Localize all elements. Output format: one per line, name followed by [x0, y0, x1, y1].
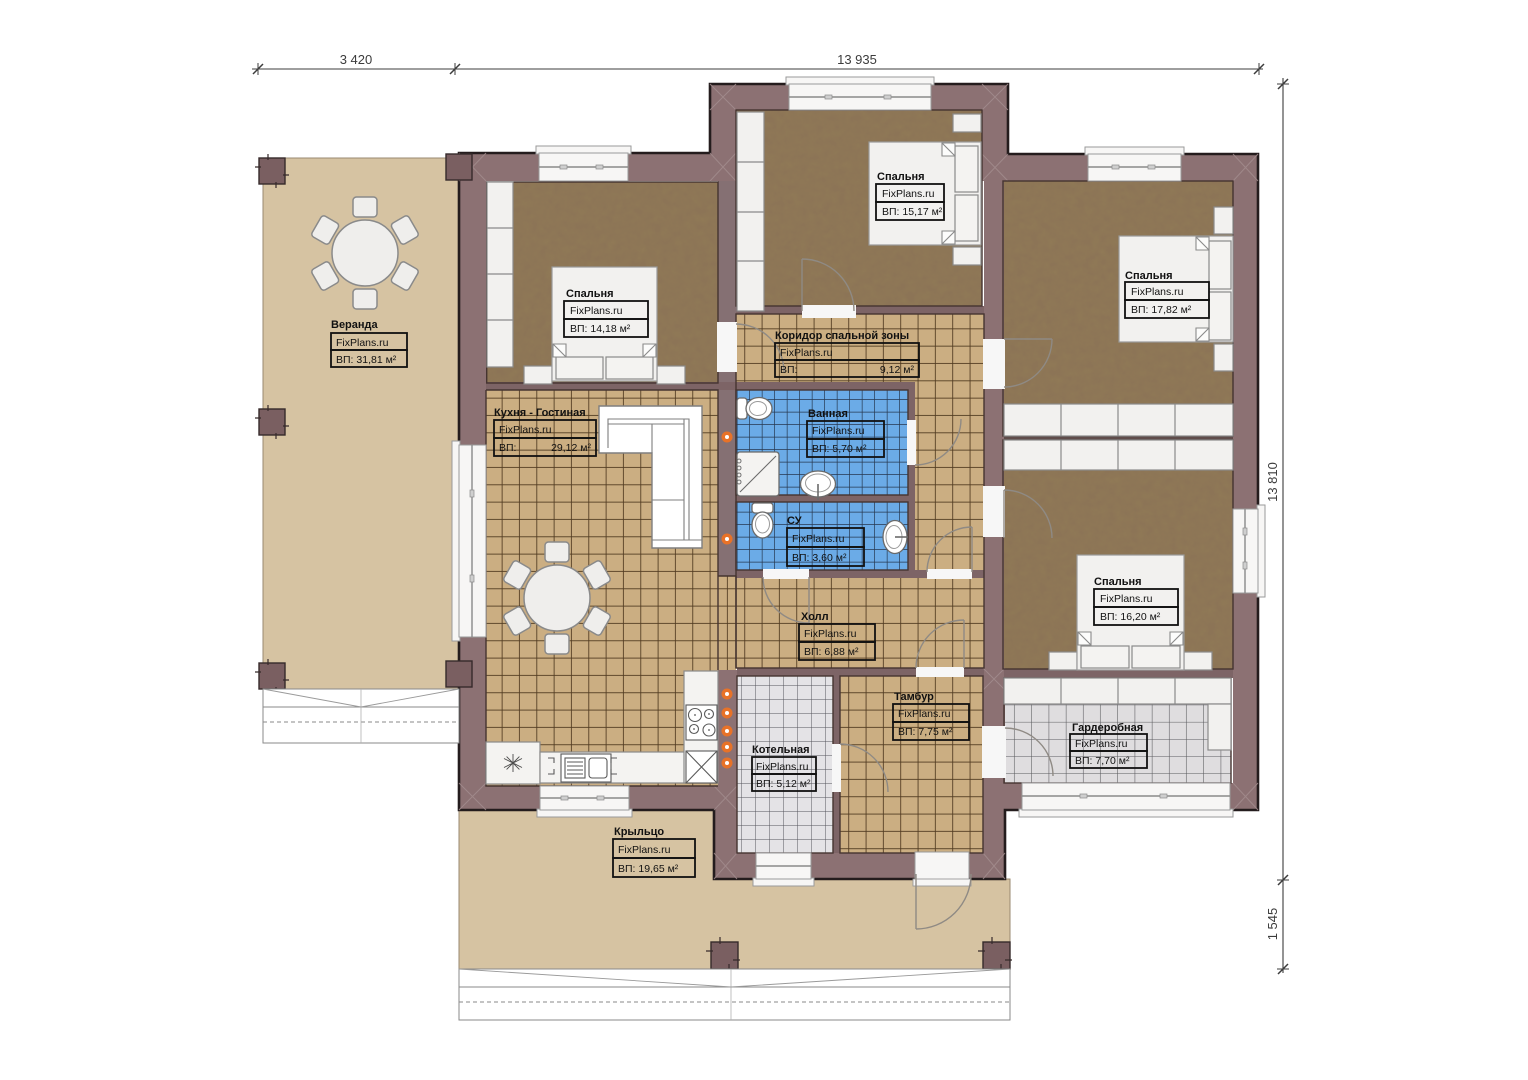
svg-text:Тамбур: Тамбур: [894, 691, 934, 703]
svg-text:FixPlans.ru: FixPlans.ru: [499, 424, 552, 436]
svg-text:Коридор спальной зоны: Коридор спальной зоны: [775, 330, 909, 342]
svg-text:FixPlans.ru: FixPlans.ru: [792, 533, 845, 545]
svg-text:3 420: 3 420: [340, 52, 373, 67]
svg-text:ВП:: ВП:: [499, 442, 516, 454]
svg-text:ВП: 5,12 м²: ВП: 5,12 м²: [756, 778, 811, 790]
svg-text:ВП: 15,17 м²: ВП: 15,17 м²: [882, 206, 943, 218]
svg-text:Гардеробная: Гардеробная: [1072, 722, 1143, 734]
svg-text:ВП: 17,82 м²: ВП: 17,82 м²: [1131, 304, 1192, 316]
svg-text:FixPlans.ru: FixPlans.ru: [336, 337, 389, 349]
svg-text:FixPlans.ru: FixPlans.ru: [1131, 286, 1184, 298]
svg-text:Кухня - Гостиная: Кухня - Гостиная: [494, 407, 586, 419]
svg-text:ВП: 31,81 м²: ВП: 31,81 м²: [336, 354, 397, 366]
svg-text:ВП: 5,70 м²: ВП: 5,70 м²: [812, 443, 867, 455]
svg-text:ВП: 14,18 м²: ВП: 14,18 м²: [570, 323, 631, 335]
svg-text:9,12 м²: 9,12 м²: [880, 364, 915, 376]
svg-text:13 935: 13 935: [837, 52, 877, 67]
svg-text:Котельная: Котельная: [752, 744, 810, 756]
svg-text:Ванная: Ванная: [808, 408, 848, 420]
svg-text:FixPlans.ru: FixPlans.ru: [898, 708, 951, 720]
svg-text:FixPlans.ru: FixPlans.ru: [882, 188, 935, 200]
svg-text:Спальня: Спальня: [1094, 576, 1142, 588]
svg-text:FixPlans.ru: FixPlans.ru: [780, 347, 833, 359]
svg-text:ВП: 3,60 м²: ВП: 3,60 м²: [792, 552, 847, 564]
svg-text:ВП: 6,88 м²: ВП: 6,88 м²: [804, 646, 859, 658]
svg-text:13 810: 13 810: [1265, 462, 1280, 502]
svg-text:ВП: 19,65 м²: ВП: 19,65 м²: [618, 863, 679, 875]
svg-text:Холл: Холл: [801, 611, 829, 623]
svg-text:FixPlans.ru: FixPlans.ru: [1075, 738, 1128, 750]
svg-text:Крыльцо: Крыльцо: [614, 826, 664, 838]
svg-text:29,12 м²: 29,12 м²: [551, 442, 591, 454]
svg-text:FixPlans.ru: FixPlans.ru: [1100, 593, 1153, 605]
svg-text:Веранда: Веранда: [331, 319, 379, 331]
svg-text:FixPlans.ru: FixPlans.ru: [804, 628, 857, 640]
svg-text:FixPlans.ru: FixPlans.ru: [812, 425, 865, 437]
svg-text:ВП:: ВП:: [780, 364, 797, 376]
svg-text:FixPlans.ru: FixPlans.ru: [756, 761, 809, 773]
svg-text:Спальня: Спальня: [1125, 270, 1173, 282]
svg-text:ВП: 16,20 м²: ВП: 16,20 м²: [1100, 611, 1161, 623]
svg-text:ВП: 7,75 м²: ВП: 7,75 м²: [898, 726, 953, 738]
svg-text:FixPlans.ru: FixPlans.ru: [618, 844, 671, 856]
svg-text:Спальня: Спальня: [877, 171, 925, 183]
svg-text:FixPlans.ru: FixPlans.ru: [570, 305, 623, 317]
svg-text:СУ: СУ: [787, 515, 802, 527]
svg-text:Спальня: Спальня: [566, 288, 614, 300]
svg-text:ВП: 7,70 м²: ВП: 7,70 м²: [1075, 755, 1130, 767]
svg-text:1 545: 1 545: [1265, 908, 1280, 941]
